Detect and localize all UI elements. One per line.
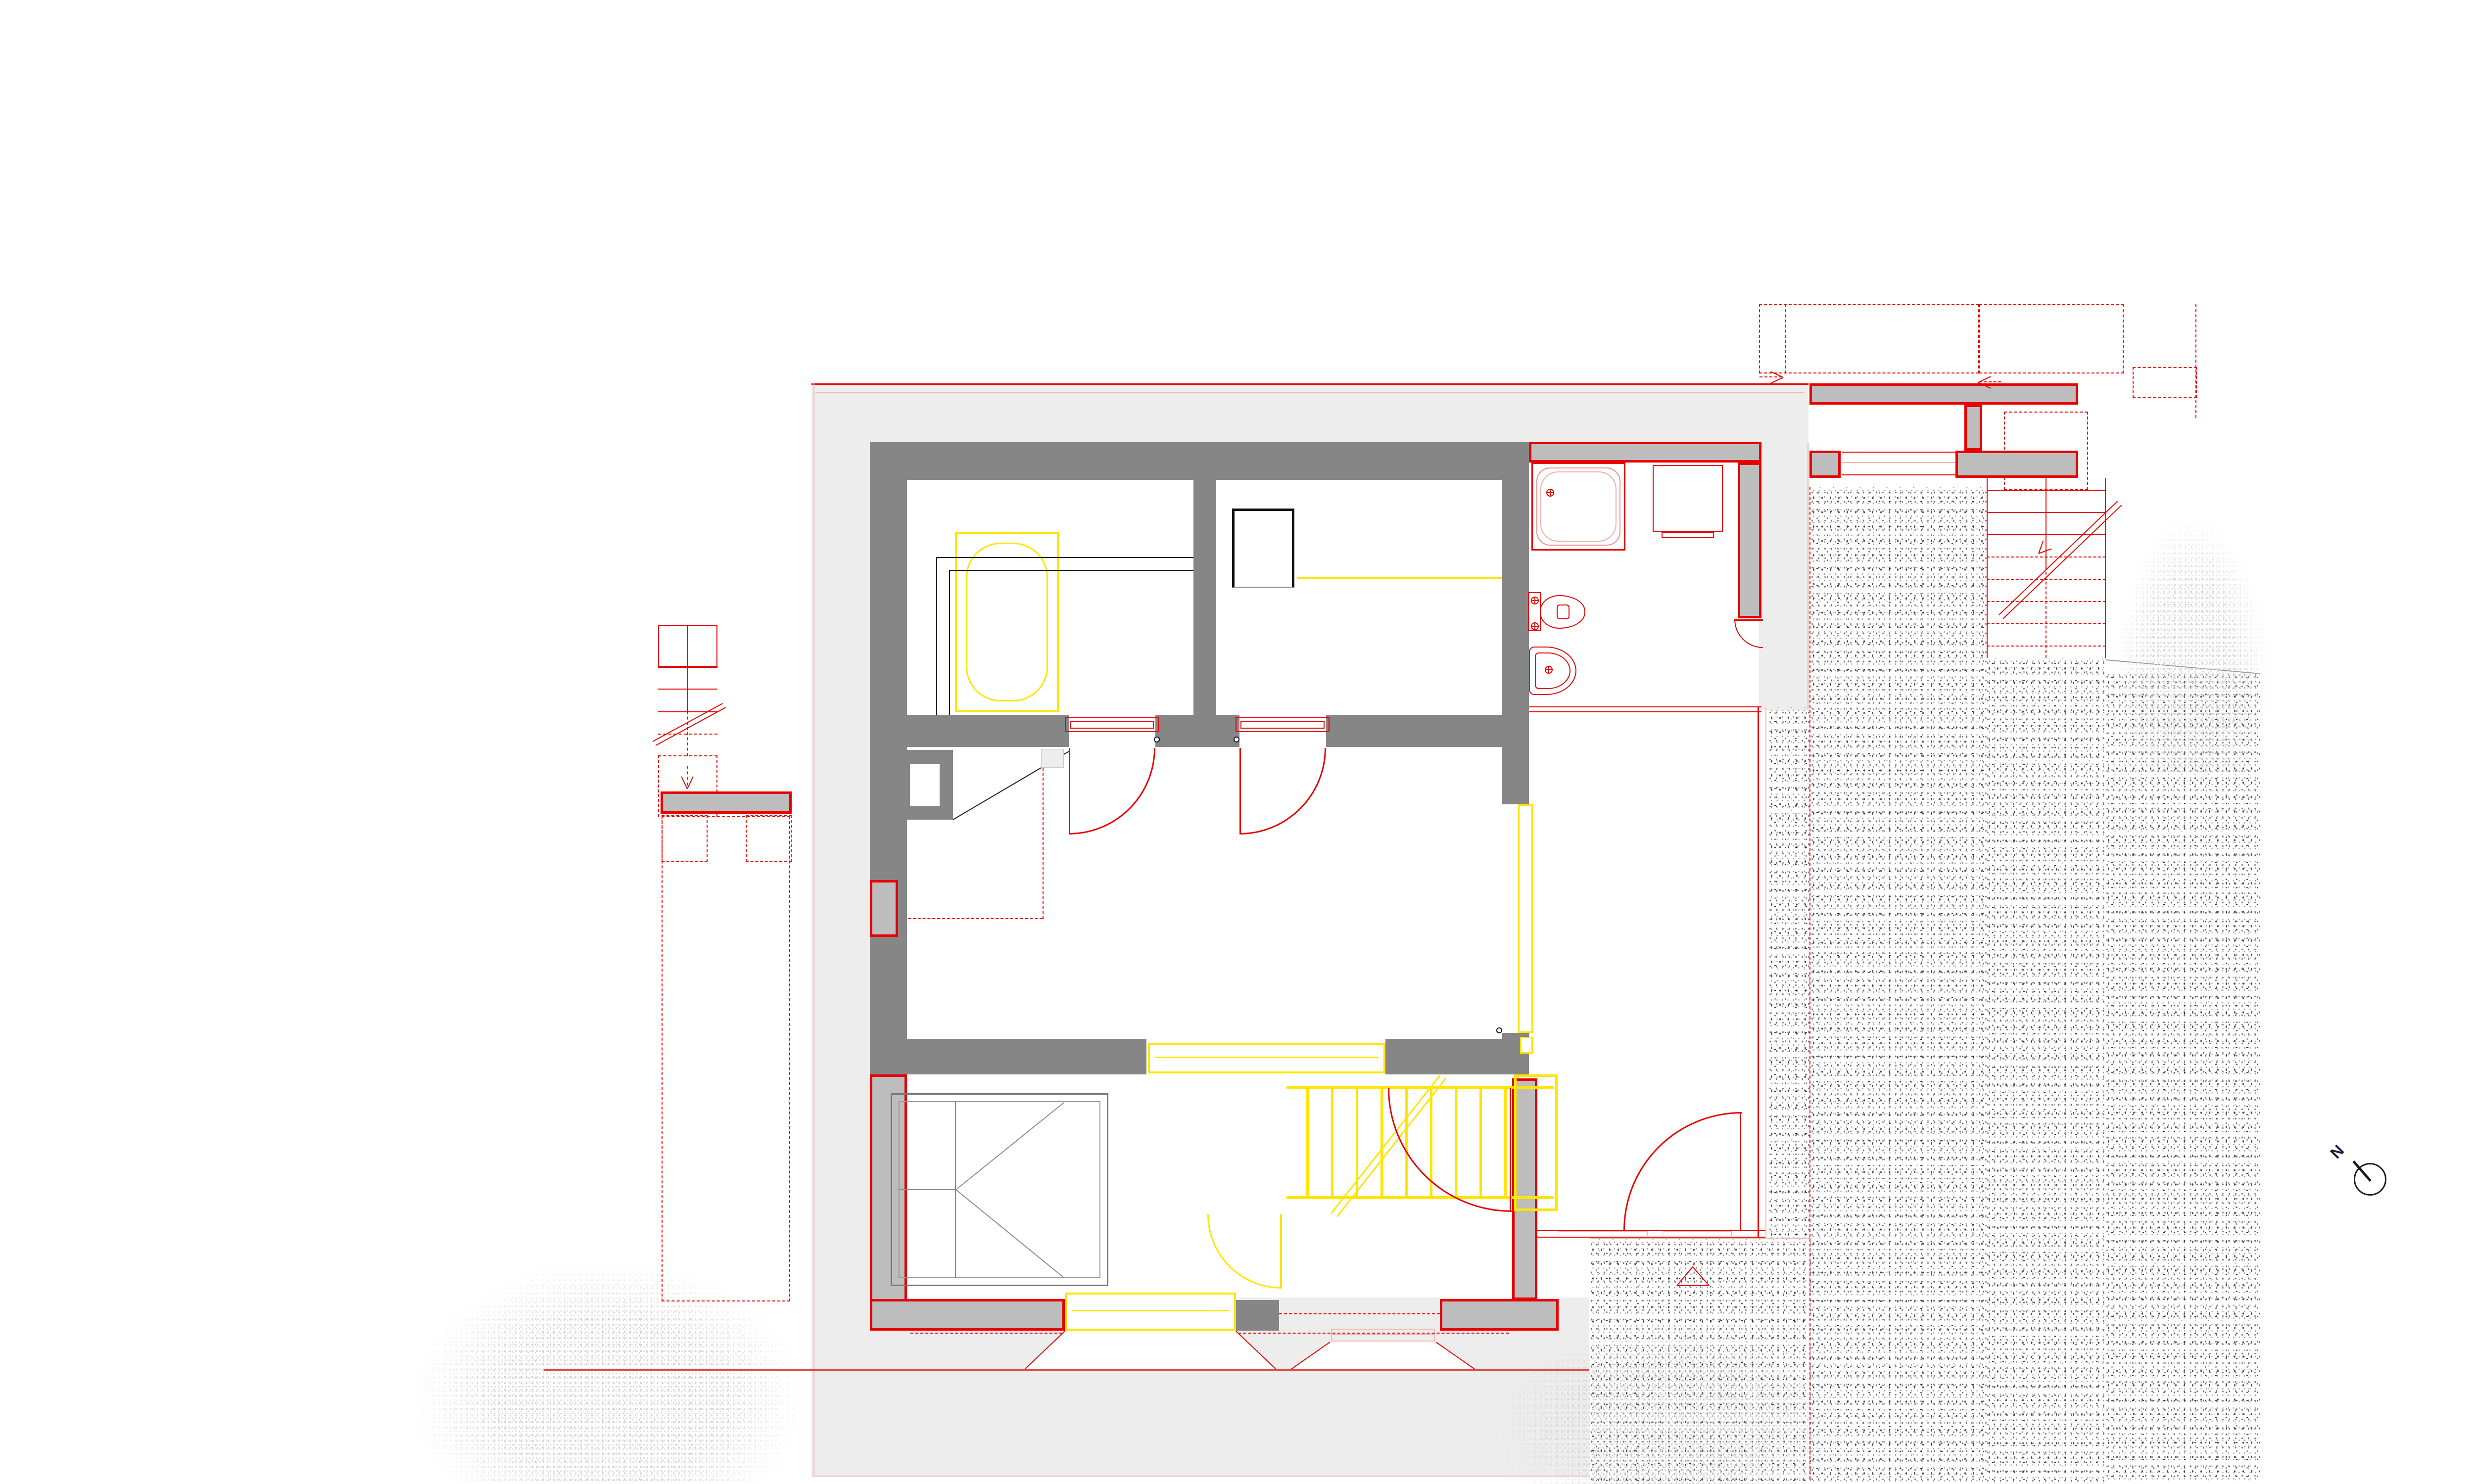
toilet-fixing-symbol-1	[1531, 597, 1539, 604]
new-deck-wall-lower-right	[1955, 451, 2078, 478]
annex-boundary-line-1	[1529, 706, 1761, 707]
entry-gap-dashed-line	[1279, 1313, 1440, 1314]
toilet-seat-detail	[1557, 604, 1570, 619]
porch-boundary-right-red	[1758, 707, 1759, 1237]
new-wall-bottomleft-horizontal	[870, 1299, 1065, 1331]
washbasin-cabinet	[1653, 465, 1723, 532]
roof-edge-line-top-inner	[815, 392, 1804, 393]
window-hall-existing-mullion	[1331, 1334, 1435, 1335]
floor-plan-canvas: N	[0, 0, 2474, 1484]
door-frame-right-inner	[1240, 721, 1325, 729]
new-infill-left-wall	[870, 880, 898, 937]
ext-stair-west-cut-line-2	[656, 707, 726, 746]
new-wall-annex-top	[1529, 442, 1761, 463]
porch-door-swing-arc	[1623, 1112, 1742, 1230]
entrance-triangle-base	[1677, 1285, 1709, 1286]
ext-stair-west-axis-dashed	[687, 711, 688, 756]
door-swing-arc-right	[1239, 748, 1326, 835]
chimney-flue-void	[910, 764, 940, 806]
demolition-dashed-horizontal	[908, 918, 1043, 919]
ext-stair-west-arrow-head-2	[681, 776, 688, 789]
stair-tread-1	[1306, 1089, 1309, 1196]
wall-center-bottom-left	[870, 1039, 1146, 1074]
ext-stair-east-side-right	[2105, 478, 2106, 658]
wall-mid-segment-c	[1326, 715, 1502, 747]
stair-rail-bottom	[1286, 1196, 1554, 1199]
deck-arrow-left-head-1	[1770, 377, 1783, 384]
annex-door-swing-arc	[1734, 619, 1763, 648]
ext-stair-west-tread-5	[658, 755, 717, 756]
door-stop-symbol-2	[1234, 737, 1239, 742]
floor-pad	[1041, 749, 1064, 768]
wall-right-upper	[1502, 442, 1529, 804]
new-element-line-room2	[1297, 577, 1502, 579]
terrace-edge-line-bottom	[811, 1476, 1589, 1477]
deck-demolition-outline-left	[1759, 304, 1979, 373]
door-leaf-right	[1239, 748, 1241, 835]
deck-demolition-axis	[1785, 304, 1786, 373]
roof-edge-line-top	[811, 383, 1808, 385]
shower-drain-symbol	[1546, 489, 1554, 497]
appliance-box	[1232, 509, 1294, 588]
ext-stair-west-arrow-stem	[687, 766, 688, 786]
ext-stair-west-tread-1	[658, 667, 717, 668]
terrace-edge-red-line	[544, 1369, 1589, 1371]
porch-boundary-right-pink	[1765, 707, 1766, 1237]
toilet-fixing-symbol-2	[1531, 622, 1539, 630]
window-hall-existing	[1331, 1329, 1435, 1342]
gravel-terrain-2	[1987, 658, 2106, 1484]
ext-stair-east-axis-dashed	[2046, 567, 2046, 658]
ext-stair-east-axis	[2046, 478, 2046, 567]
west-terrace-dashed-footprint	[662, 816, 790, 1301]
new-deck-wall-upper	[1809, 383, 2078, 405]
gravel-terrain-3	[2106, 672, 2260, 1484]
new-glazing-connector	[1520, 1037, 1533, 1054]
new-glazing-strip	[1518, 804, 1533, 1033]
new-deck-wall-stub	[1964, 405, 1982, 451]
deck-demolition-outline-small	[2133, 367, 2197, 398]
stair-door-swing-arc-yellow	[1207, 1214, 1282, 1289]
roof-edge-line-right	[1808, 443, 1808, 710]
bed-pillow-split	[899, 1189, 955, 1190]
tree-silhouette-east	[2118, 524, 2266, 772]
roof-band-right	[1759, 443, 1809, 710]
deck-opening-line-top	[1842, 452, 1955, 453]
ext-stair-east-cut-line-2	[2002, 505, 2122, 619]
tree-silhouette-south	[1494, 1326, 1841, 1484]
wall-room-divider-top	[1193, 480, 1216, 716]
deck-opening-line-bottom	[1842, 474, 1955, 475]
light-well-1	[1024, 1331, 1277, 1369]
door-frame-left-inner	[1070, 721, 1154, 729]
ext-stair-west-tread-2	[658, 689, 717, 690]
ext-stair-east-side-left	[1987, 478, 1988, 658]
door-leaf-left	[1069, 748, 1070, 835]
ext-stair-west-side-left-dashed	[658, 755, 659, 817]
new-deck-wall-lower-left	[1809, 451, 1841, 478]
deck-dashed-boundary-right	[2195, 304, 2196, 418]
deck-opening-line-mid	[1842, 462, 1955, 463]
ext-stair-west-axis	[687, 625, 688, 711]
wall-mid-segment-a	[907, 715, 1069, 747]
stair-tread-4	[1380, 1089, 1383, 1196]
gravel-terrain-5	[1769, 707, 1811, 1239]
stair-door-leaf-red	[1510, 1088, 1511, 1212]
porch-bottom-line-2	[1537, 1237, 1765, 1238]
roof-edge-line-left	[813, 383, 814, 1475]
porch-window-frame-1	[1559, 1231, 1648, 1236]
new-wall-west-stair	[661, 791, 792, 814]
wall-center-bottom-right	[1385, 1039, 1529, 1074]
washbasin-base	[1662, 532, 1714, 538]
ext-stair-west-landing	[658, 625, 717, 667]
bidet-drain-symbol	[1545, 666, 1553, 674]
annex-boundary-line-2	[1529, 711, 1761, 712]
door-stop-symbol-3	[1496, 1027, 1502, 1033]
new-wall-annex-right	[1738, 463, 1761, 618]
bathtub-basin	[966, 543, 1048, 701]
terrain-boundary-line	[1590, 1238, 1811, 1239]
deck-demolition-outline-mid	[1979, 304, 2124, 373]
stair-window-center-mullion	[1155, 1057, 1379, 1058]
counter-edge-outer-h	[936, 557, 1193, 558]
shower-tray-inner-2	[1540, 471, 1617, 542]
door-swing-arc-left	[1069, 748, 1155, 835]
stair-door-leaf-yellow	[1280, 1214, 1282, 1289]
door-stop-symbol-1	[1154, 737, 1160, 742]
new-wall-bottomright-horizontal	[1440, 1299, 1559, 1331]
terrain-dashed-boundary	[1809, 487, 1810, 1479]
wall-top	[870, 442, 1529, 480]
wall-mid-segment-b	[1155, 715, 1239, 747]
stair-landing-frame	[1514, 1074, 1558, 1211]
roof-band-left	[811, 383, 870, 1333]
counter-edge-inner-v	[949, 570, 950, 715]
counter-edge-inner-h	[949, 570, 1193, 571]
counter-edge-outer-v	[936, 557, 937, 715]
demolition-dashed-vertical	[1043, 768, 1044, 919]
stair-window-center-wall	[1148, 1043, 1385, 1073]
window-bedroom	[1065, 1293, 1236, 1331]
window-bedroom-mullion	[1072, 1310, 1229, 1311]
stair-tread-2	[1331, 1089, 1333, 1196]
ext-stair-east-cut-line-1	[1998, 501, 2118, 615]
wall-bottom-segment	[1236, 1300, 1279, 1331]
deck-arrow-mid-stem	[1979, 381, 2001, 382]
porch-window-frame-2	[1663, 1231, 1732, 1236]
porch-door-leaf	[1740, 1112, 1741, 1230]
deck-arrow-left-stem	[1760, 376, 1782, 377]
annex-door-leaf	[1734, 619, 1763, 621]
north-label: N	[2327, 1141, 2348, 1162]
